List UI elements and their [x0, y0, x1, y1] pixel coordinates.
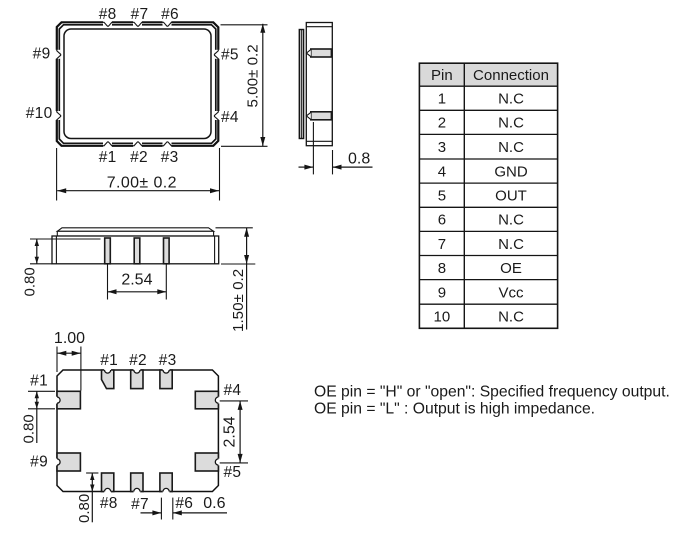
svg-text:N.C: N.C	[498, 115, 524, 132]
svg-text:6: 6	[438, 212, 446, 229]
svg-text:OUT: OUT	[495, 188, 527, 205]
svg-text:OE pin = "H" or "open": Specif: OE pin = "H" or "open": Specified freque…	[314, 383, 670, 400]
svg-text:9: 9	[438, 284, 446, 301]
svg-text:3: 3	[438, 139, 446, 156]
svg-text:N.C: N.C	[498, 91, 524, 108]
svg-text:N.C: N.C	[498, 309, 524, 326]
svg-text:Vcc: Vcc	[498, 284, 524, 301]
svg-text:10: 10	[434, 309, 451, 326]
svg-text:N.C: N.C	[498, 139, 524, 156]
svg-text:2: 2	[438, 115, 446, 132]
svg-text:N.C: N.C	[498, 212, 524, 229]
svg-text:GND: GND	[494, 163, 528, 180]
svg-text:N.C: N.C	[498, 236, 524, 253]
svg-text:4: 4	[438, 163, 446, 180]
svg-text:OE: OE	[500, 260, 522, 277]
svg-text:5: 5	[438, 188, 446, 205]
svg-text:1: 1	[438, 91, 446, 108]
svg-text:7: 7	[438, 236, 446, 253]
svg-text:OE pin = "L" : Output is high: OE pin = "L" : Output is high impedance.	[314, 401, 595, 418]
svg-text:Pin: Pin	[431, 67, 453, 84]
svg-text:8: 8	[438, 260, 446, 277]
svg-text:Connection: Connection	[473, 67, 549, 84]
